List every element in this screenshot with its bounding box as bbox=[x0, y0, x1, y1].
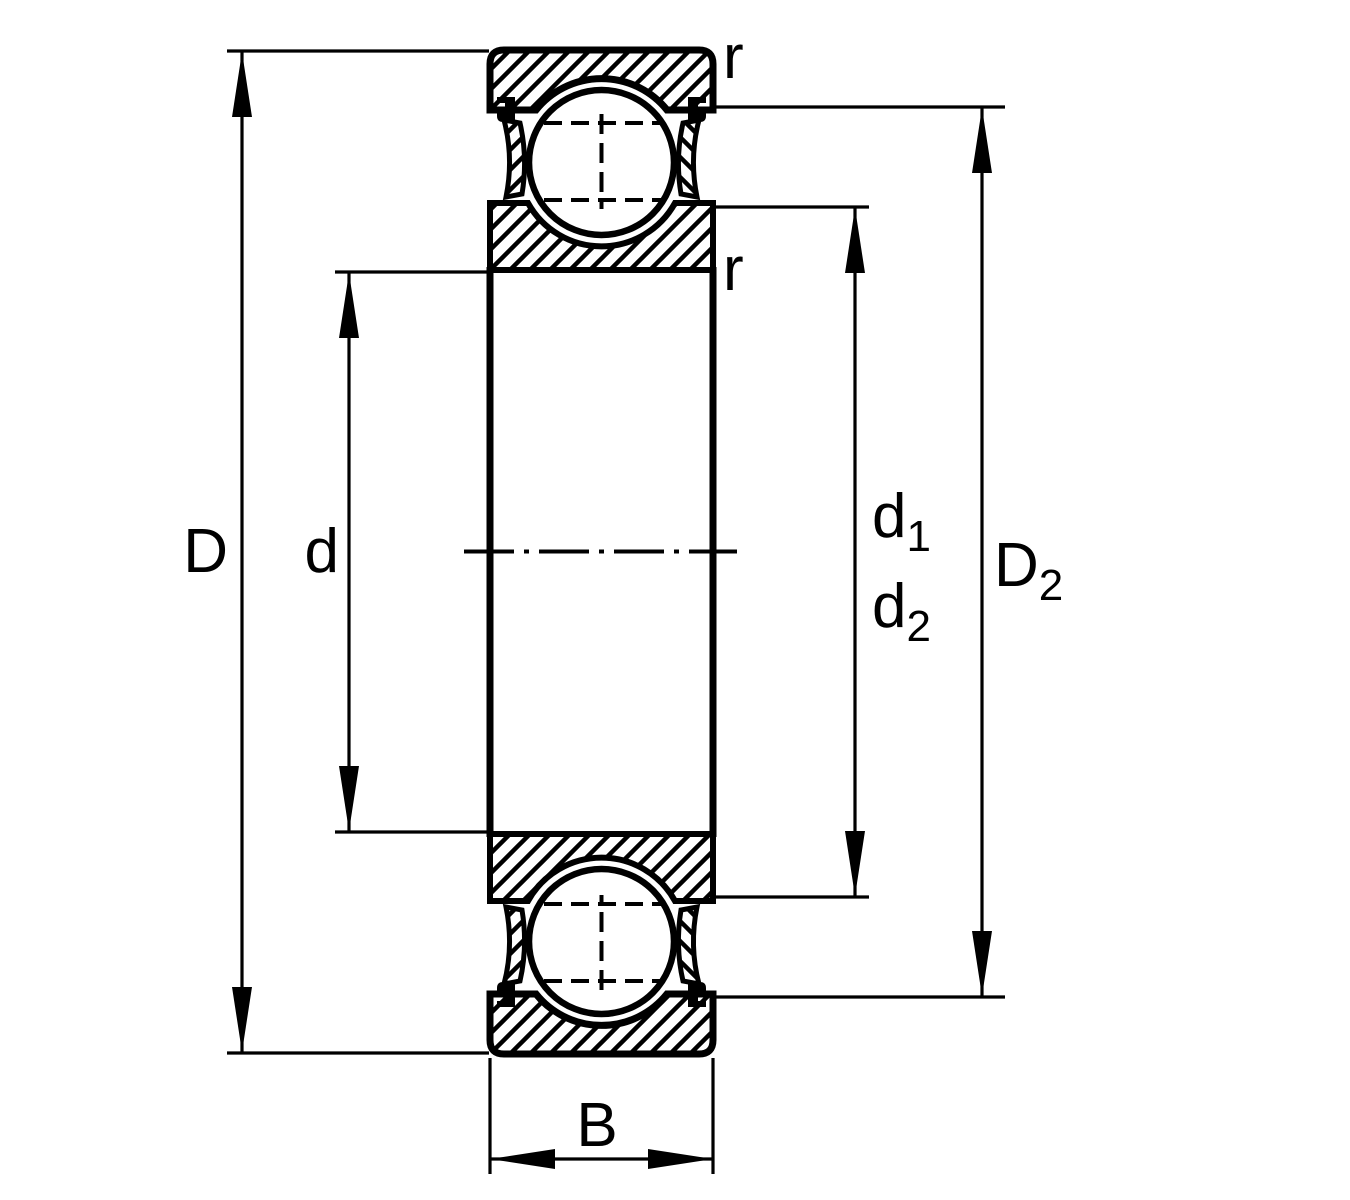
label-D2-main: D bbox=[994, 531, 1039, 600]
label-chamfer-radius-outer-r: r bbox=[723, 23, 744, 92]
label-d2-sub: 2 bbox=[906, 602, 930, 651]
label-chamfer-radius-inner-r: r bbox=[723, 235, 744, 304]
label-d2-main: d bbox=[872, 572, 906, 641]
bearing-technical-drawing: D d d1 d2 D2 B r r bbox=[0, 0, 1350, 1200]
bearing-drawing-page: D d d1 d2 D2 B r r bbox=[0, 0, 1350, 1200]
label-d1-sub: 1 bbox=[906, 512, 930, 561]
label-outer-diameter-D: D bbox=[183, 517, 228, 586]
bearing-cross-section bbox=[464, 50, 737, 1054]
label-bore-diameter-d: d bbox=[305, 517, 339, 586]
label-d1-main: d bbox=[872, 482, 906, 551]
label-D2-sub: 2 bbox=[1039, 561, 1063, 610]
label-width-B: B bbox=[576, 1091, 617, 1160]
